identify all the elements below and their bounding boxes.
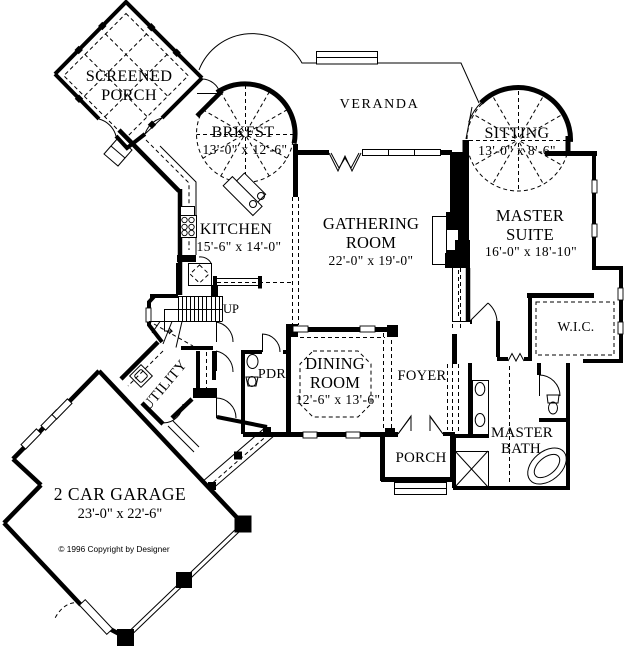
svg-text:ROOM: ROOM <box>346 233 396 252</box>
svg-text:15'-6" x 14'-0": 15'-6" x 14'-0" <box>197 239 282 254</box>
svg-text:© 1996 Copyright by Designer: © 1996 Copyright by Designer <box>58 544 170 554</box>
svg-text:SCREENED: SCREENED <box>86 66 173 85</box>
svg-text:12'-6" x 13'-6": 12'-6" x 13'-6" <box>296 392 381 407</box>
svg-text:MASTER: MASTER <box>496 206 564 225</box>
svg-text:GATHERING: GATHERING <box>323 214 419 233</box>
svg-text:23'-0" x 22'-6": 23'-0" x 22'-6" <box>78 506 163 522</box>
svg-text:ROOM: ROOM <box>310 373 360 392</box>
svg-text:FOYER: FOYER <box>397 368 446 384</box>
svg-text:SITTING: SITTING <box>484 125 549 142</box>
svg-text:BATH: BATH <box>501 441 541 457</box>
svg-text:VERANDA: VERANDA <box>340 97 420 112</box>
svg-text:2 CAR GARAGE: 2 CAR GARAGE <box>54 484 186 504</box>
svg-text:DINING: DINING <box>305 354 365 373</box>
svg-text:UP: UP <box>223 302 239 316</box>
svg-text:13'-0" x 12'-6": 13'-0" x 12'-6" <box>203 142 288 157</box>
svg-text:MASTER: MASTER <box>491 425 553 441</box>
svg-text:16'-0" x 18'-10": 16'-0" x 18'-10" <box>485 244 577 259</box>
svg-text:PORCH: PORCH <box>395 450 446 466</box>
svg-text:KITCHEN: KITCHEN <box>200 221 272 238</box>
svg-text:PORCH: PORCH <box>101 85 157 104</box>
svg-text:PDR: PDR <box>258 367 286 382</box>
svg-text:13'-0" x 8'-6": 13'-0" x 8'-6" <box>478 143 556 158</box>
svg-text:W.I.C.: W.I.C. <box>558 319 595 334</box>
svg-text:BRKFST: BRKFST <box>212 124 275 141</box>
svg-text:22'-0" x 19'-0": 22'-0" x 19'-0" <box>329 253 414 268</box>
svg-text:SUITE: SUITE <box>506 225 554 244</box>
